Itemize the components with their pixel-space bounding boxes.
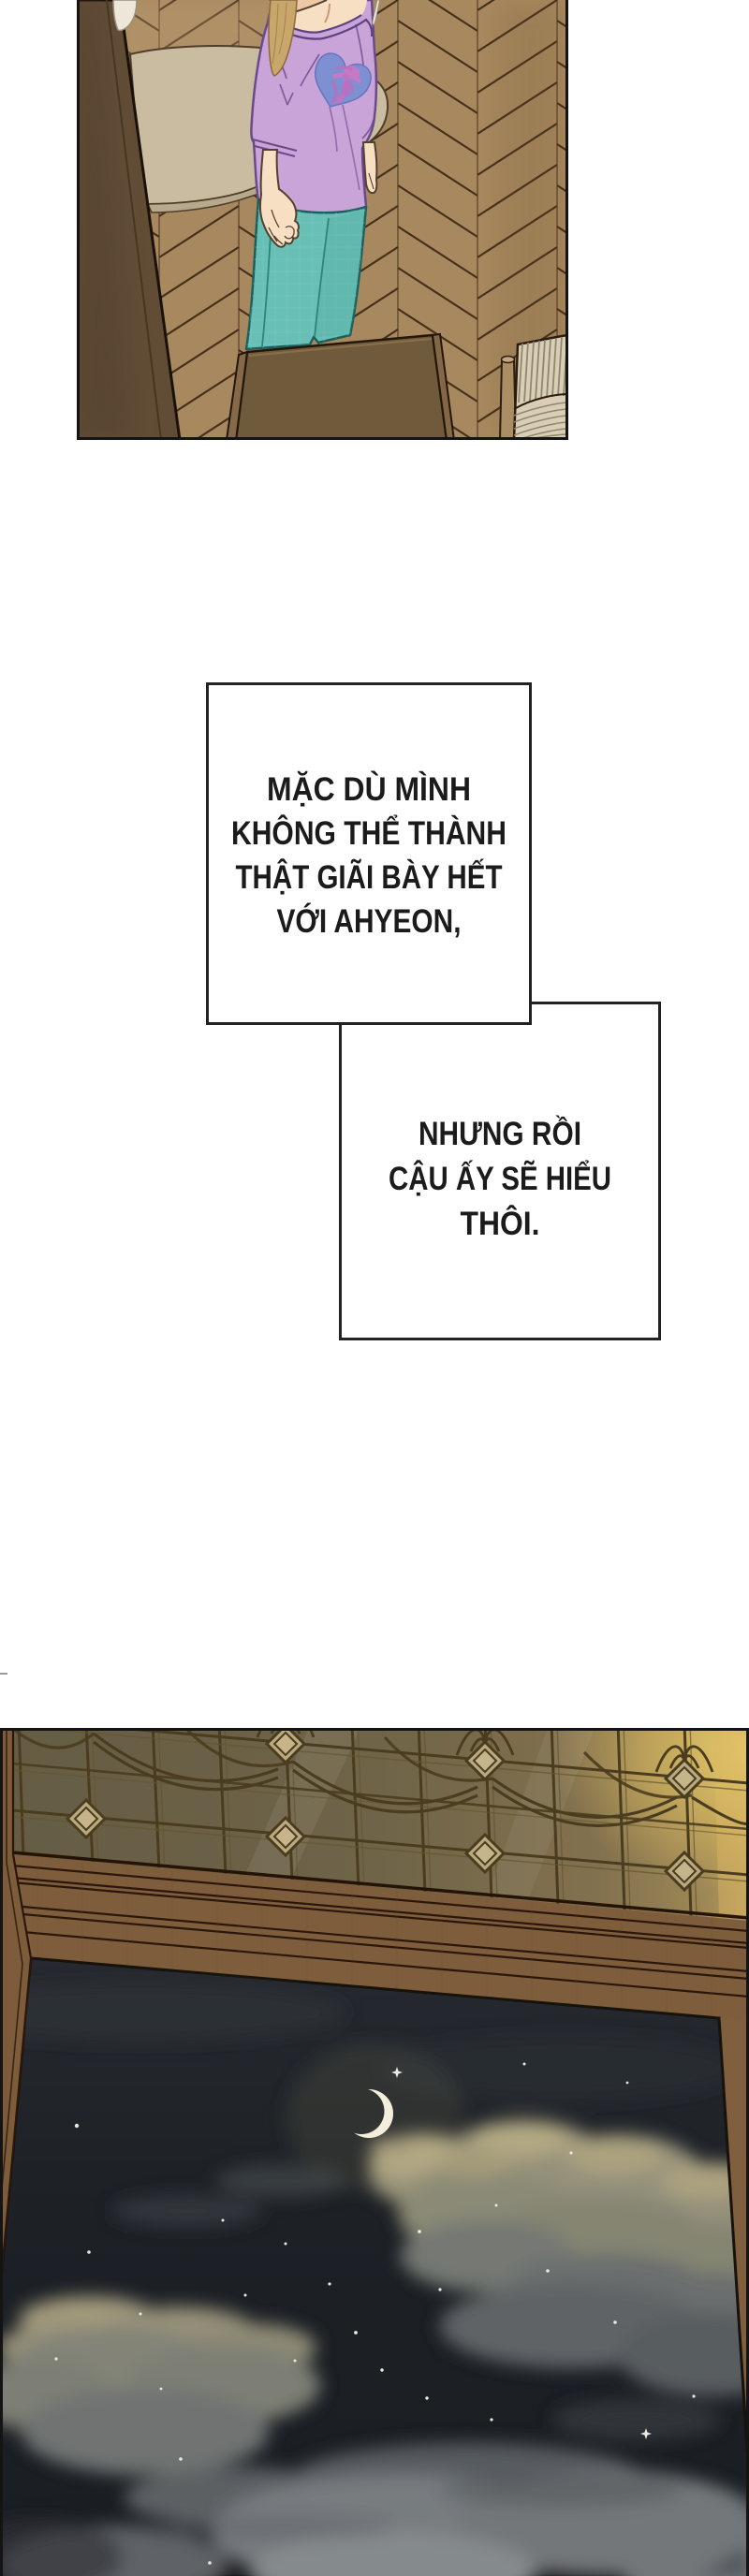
svg-text:NHƯNG RỒI: NHƯNG RỒI: [419, 1115, 581, 1152]
svg-text:KHÔNG THỂ THÀNH: KHÔNG THỂ THÀNH: [231, 814, 507, 852]
svg-text:MẶC DÙ MÌNH: MẶC DÙ MÌNH: [267, 770, 471, 808]
svg-text:CẬU ẤY SẼ HIỂU: CẬU ẤY SẼ HIỂU: [389, 1160, 611, 1197]
svg-text:THẬT GIÃI BÀY HẾT: THẬT GIÃI BÀY HẾT: [236, 858, 503, 896]
svg-text:THÔI.: THÔI.: [461, 1205, 540, 1242]
svg-text:VỚI AHYEON,: VỚI AHYEON,: [277, 902, 462, 940]
